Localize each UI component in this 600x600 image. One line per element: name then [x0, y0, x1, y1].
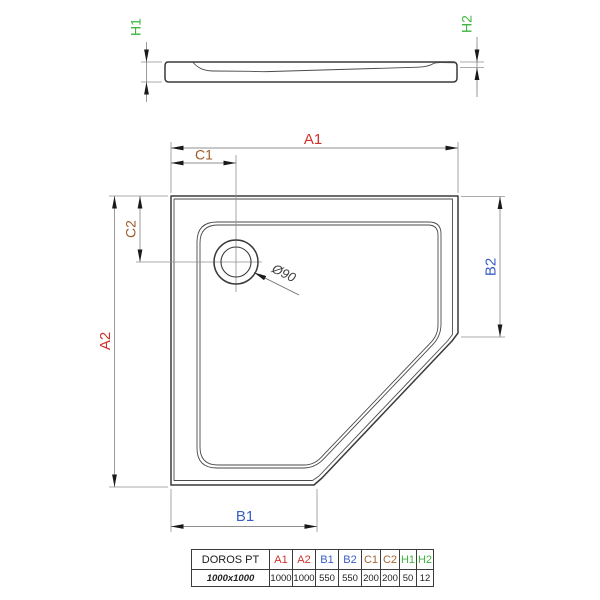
dim-b1-label: B1 [236, 508, 254, 525]
shower-tray-dimension-drawing: H1 H2 Ø90 A1 C1 [0, 0, 600, 600]
value-a2: 1000 [293, 570, 316, 587]
basin-outer-contour [197, 222, 441, 468]
tray-rim-inner-edge [174, 199, 453, 481]
dimension-a2: A2 [97, 196, 168, 487]
dim-h1-label: H1 [128, 18, 144, 36]
side-profile-view [165, 62, 457, 82]
dimension-c1: C1 [171, 147, 236, 164]
col-header-a2: A2 [293, 550, 316, 570]
dimension-h2: H2 [459, 15, 485, 97]
value-a1: 1000 [270, 570, 293, 587]
dim-c1-label: C1 [195, 147, 213, 163]
dimension-b2: B2 [461, 197, 505, 338]
dimension-b1: B1 [171, 489, 317, 532]
plan-view: Ø90 [136, 155, 458, 485]
size-label: 1000x1000 [192, 570, 270, 587]
dimension-c2: C2 [123, 196, 141, 262]
dim-b2-label: B2 [483, 258, 500, 276]
dimension-a1: A1 [171, 131, 458, 193]
value-c1: 200 [362, 570, 381, 587]
dim-c2-label: C2 [123, 220, 139, 238]
value-c2: 200 [381, 570, 400, 587]
profile-basin-line [193, 63, 456, 72]
col-header-c1: C1 [362, 550, 381, 570]
value-h2: 12 [417, 570, 434, 587]
col-header-h2: H2 [417, 550, 434, 570]
dimension-h1: H1 [128, 18, 163, 102]
dim-a1-label: A1 [304, 131, 322, 148]
value-b1: 550 [316, 570, 339, 587]
col-header-h1: H1 [400, 550, 417, 570]
model-name: DOROS PT [192, 550, 270, 570]
value-b2: 550 [339, 570, 362, 587]
technical-drawing-page: { "drawing": { "dim_labels": { "a1": "A1… [0, 0, 600, 600]
col-header-a1: A1 [270, 550, 293, 570]
dim-h2-label: H2 [459, 15, 475, 33]
col-header-b2: B2 [339, 550, 362, 570]
dim-a2-label: A2 [97, 332, 114, 350]
tray-outer-edge [171, 196, 458, 485]
col-header-c2: C2 [381, 550, 400, 570]
value-h1: 50 [400, 570, 417, 587]
col-header-b1: B1 [316, 550, 339, 570]
spec-table-value-row: 1000x1000 1000 1000 550 550 200 200 50 1… [192, 570, 434, 587]
spec-table-header-row: DOROS PT A1 A2 B1 B2 C1 C2 H1 H2 [192, 550, 434, 570]
spec-table: DOROS PT A1 A2 B1 B2 C1 C2 H1 H2 1000x10… [191, 549, 434, 587]
profile-outline [165, 62, 457, 82]
